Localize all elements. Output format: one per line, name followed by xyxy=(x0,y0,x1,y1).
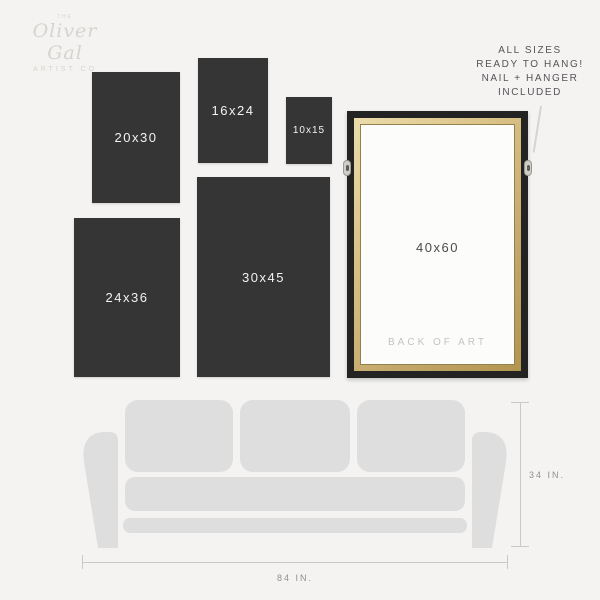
height-dimension-tick-top xyxy=(511,402,529,403)
sofa-armrest-left xyxy=(83,432,118,548)
height-dimension-line xyxy=(520,402,521,547)
sofa-back-cushion xyxy=(357,400,465,472)
sofa-silhouette xyxy=(0,0,600,600)
sofa-back-cushion xyxy=(125,400,233,472)
width-dimension-tick-right xyxy=(507,555,508,569)
width-dimension-tick-left xyxy=(82,555,83,569)
size-guide-graphic: THE Oliver Gal ARTIST CO 20x30 16x24 10x… xyxy=(0,0,600,600)
sofa-seat-cushion xyxy=(125,477,465,511)
sofa-base-rail xyxy=(123,518,467,533)
sofa-back-cushion xyxy=(240,400,350,472)
sofa-armrest-right xyxy=(472,432,507,548)
height-dimension-tick-bottom xyxy=(511,546,529,547)
width-dimension-line xyxy=(82,562,508,563)
sofa-width-label: 84 IN. xyxy=(265,573,325,583)
sofa-height-label: 34 IN. xyxy=(529,470,565,480)
